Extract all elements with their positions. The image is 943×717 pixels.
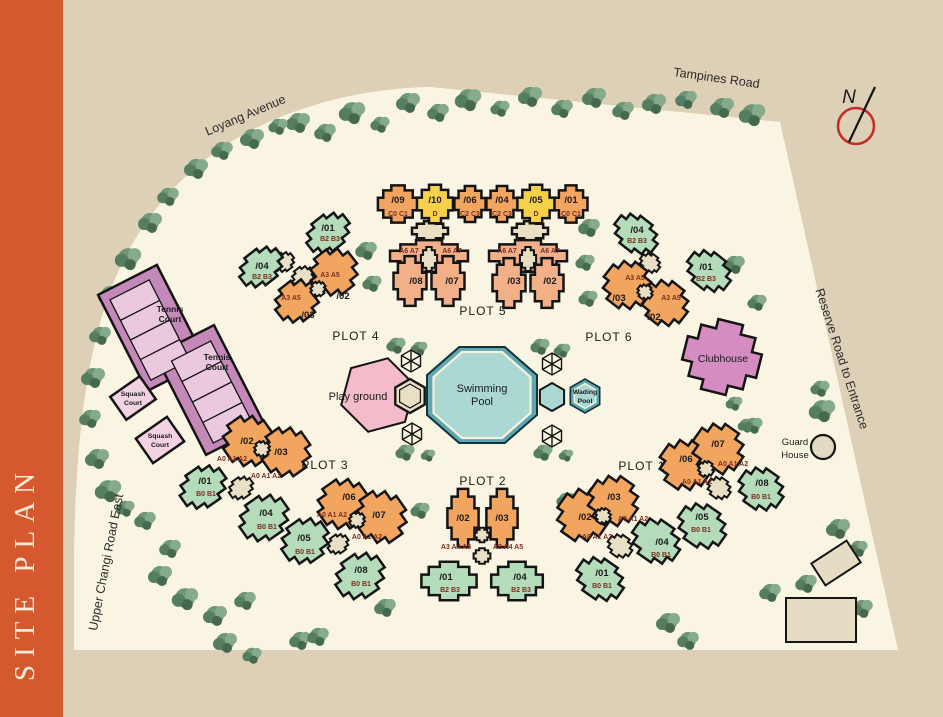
gazebo-icon (543, 353, 562, 375)
type-label: B2 B3 (511, 587, 531, 594)
type-label: A3 A5 (320, 272, 340, 279)
type-label: A0 A1 A2 (317, 512, 347, 519)
unit-label: /03 (612, 293, 625, 304)
svg-text:Pool: Pool (578, 398, 593, 405)
type-label: A6 A7 (540, 248, 560, 255)
unit-label: /05 (529, 195, 543, 206)
unit-label: /01 (321, 223, 335, 234)
plot-label: PLOT 1 (618, 459, 665, 473)
unit-label: /04 (255, 261, 269, 272)
unit-label: /02 (647, 312, 660, 323)
unit-label: /02 (240, 436, 253, 447)
unit-label: /01 (198, 476, 212, 487)
gazebo-icon (402, 350, 421, 372)
site-plan-page: Tennis Court Tennis Court Squash Court S… (0, 0, 943, 717)
unit-label: /06 (463, 195, 476, 206)
unit-label: /01 (564, 195, 578, 206)
type-label: A0 A1 A2 (582, 534, 612, 541)
gazebo-icon (403, 423, 422, 445)
plot-label: PLOT 5 (459, 304, 506, 318)
swimming-pool-label: Swimming (457, 383, 508, 395)
unit-label: /01 (439, 572, 453, 583)
wading-pool-label: Wading (573, 389, 597, 396)
small-pond (540, 383, 564, 411)
type-label: D (533, 211, 538, 218)
unit-label: /06 (342, 492, 355, 503)
type-label: B0 B1 (257, 524, 277, 531)
guard-house (811, 435, 835, 459)
unit-label: /03 (495, 513, 508, 524)
tennis-court-2-label: Tennis (204, 352, 231, 362)
type-label: B0 B1 (351, 581, 371, 588)
unit-label: /01 (595, 568, 609, 579)
type-label: A3 A4 A5 (441, 544, 471, 551)
unit-label: /02 (336, 291, 349, 302)
type-label: A0 A1 A2 (251, 473, 281, 480)
type-label: A0 A1 A2 (682, 479, 712, 486)
unit-label: /02 (456, 513, 469, 524)
svg-text:Court: Court (206, 362, 229, 372)
type-label: A3 A5 (281, 295, 301, 302)
unit-label: /01 (699, 262, 713, 273)
type-label: A0 A1 A2 (618, 516, 648, 523)
north-label: N (842, 87, 856, 108)
type-label: C2 C3 (460, 211, 480, 218)
swimming-pool-water (434, 352, 531, 438)
unit-label: /05 (695, 512, 709, 523)
type-label: B2 B3 (320, 236, 340, 243)
type-label: B0 B1 (295, 549, 315, 556)
unit-label: /07 (372, 510, 385, 521)
plot-label: PLOT 6 (585, 330, 632, 344)
type-label: A3 A5 (661, 295, 681, 302)
unit-label: /09 (391, 195, 404, 206)
type-label: B0 B1 (592, 583, 612, 590)
unit-label: /04 (495, 195, 509, 206)
unit-label: /08 (755, 478, 768, 489)
svg-text:Pool: Pool (471, 396, 493, 408)
type-label: A6 A7 (442, 248, 462, 255)
type-label: B2 B3 (440, 587, 460, 594)
svg-text:Court: Court (159, 314, 182, 324)
type-label: A0 A1 A2 (352, 534, 382, 541)
guard-house-label: Guard (782, 437, 808, 448)
wading-pool (570, 379, 599, 413)
type-label: A6 A7 (497, 248, 517, 255)
unit-label: /05 (297, 533, 311, 544)
page-title: SITE PLAN (9, 465, 41, 681)
type-label: A0 A1 A2 (718, 461, 748, 468)
type-label: B2 B3 (696, 276, 716, 283)
gazebo-icon (543, 425, 562, 447)
type-label: A0 A1 A2 (217, 456, 247, 463)
type-label: D (432, 211, 437, 218)
svg-text:Court: Court (151, 442, 170, 449)
type-label: A6 A7 (399, 248, 419, 255)
unit-label: /02 (543, 276, 556, 287)
type-label: B0 B1 (196, 491, 216, 498)
type-label: A3 A4 A5 (493, 544, 523, 551)
type-label: B0 B1 (651, 552, 671, 559)
unit-label: /10 (428, 195, 441, 206)
unit-label: /03 (507, 276, 520, 287)
site-plan-map: Tennis Court Tennis Court Squash Court S… (0, 0, 943, 717)
type-label: A3 A5 (625, 275, 645, 282)
svg-text:Court: Court (124, 400, 143, 407)
svg-text:House: House (781, 450, 808, 461)
type-label: C2 C3 (492, 211, 512, 218)
plot-label: PLOT 3 (301, 458, 348, 472)
plot-label: PLOT 4 (332, 329, 379, 343)
unit-label: /04 (655, 537, 669, 548)
unit-label: /07 (445, 276, 458, 287)
unit-label: /06 (679, 454, 692, 465)
type-label: B0 B1 (751, 494, 771, 501)
clubhouse-label: Clubhouse (698, 353, 748, 365)
unit-label: /04 (259, 508, 273, 519)
type-label: B0 B1 (691, 527, 711, 534)
type-label: C0 C1 (388, 211, 408, 218)
unit-label: /02 (578, 512, 591, 523)
service-building (786, 598, 856, 642)
type-label: B2 B3 (252, 274, 272, 281)
type-label: C0 C1 (561, 211, 581, 218)
unit-label: /08 (354, 565, 367, 576)
tennis-court-1-label: Tennis (157, 304, 184, 314)
unit-label: /08 (409, 276, 422, 287)
unit-label: /04 (630, 225, 644, 236)
playground-label: Play ground (329, 391, 388, 403)
plot-label: PLOT 2 (459, 474, 506, 488)
squash-court-1-label: Squash (121, 391, 146, 398)
unit-label: /03 (301, 310, 314, 321)
unit-label: /07 (711, 439, 724, 450)
squash-court-2-label: Squash (148, 433, 173, 440)
unit-label: /04 (513, 572, 527, 583)
type-label: B2 B3 (627, 238, 647, 245)
unit-label: /03 (607, 492, 620, 503)
unit-label: /03 (274, 447, 287, 458)
